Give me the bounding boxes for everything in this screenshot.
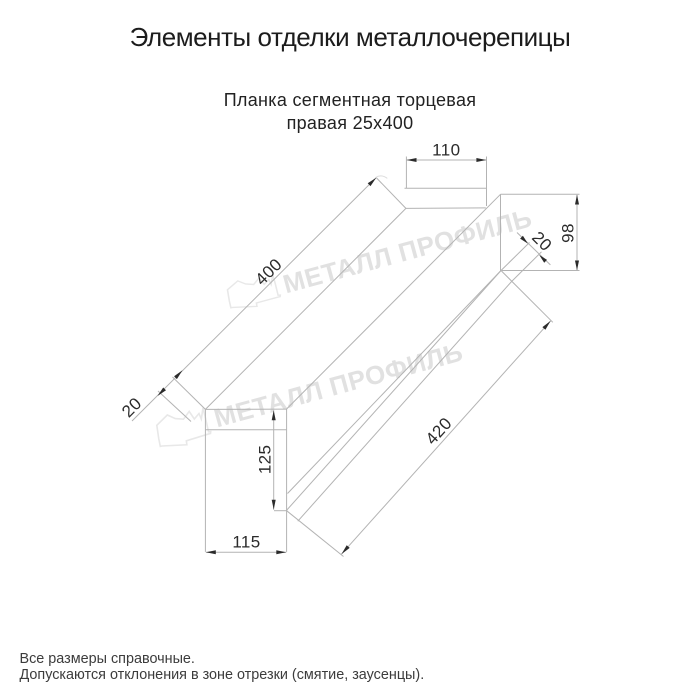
svg-text:125: 125: [256, 445, 275, 475]
svg-text:115: 115: [232, 533, 260, 552]
svg-text:110: 110: [432, 141, 460, 160]
svg-text:20: 20: [118, 394, 145, 421]
svg-text:400: 400: [252, 255, 286, 289]
svg-text:МЕТАЛЛ ПРОФИЛЬ: МЕТАЛЛ ПРОФИЛЬ: [211, 337, 467, 434]
svg-text:98: 98: [558, 223, 577, 243]
svg-text:МЕТАЛЛ ПРОФИЛЬ: МЕТАЛЛ ПРОФИЛЬ: [280, 203, 536, 300]
svg-text:420: 420: [422, 414, 456, 449]
